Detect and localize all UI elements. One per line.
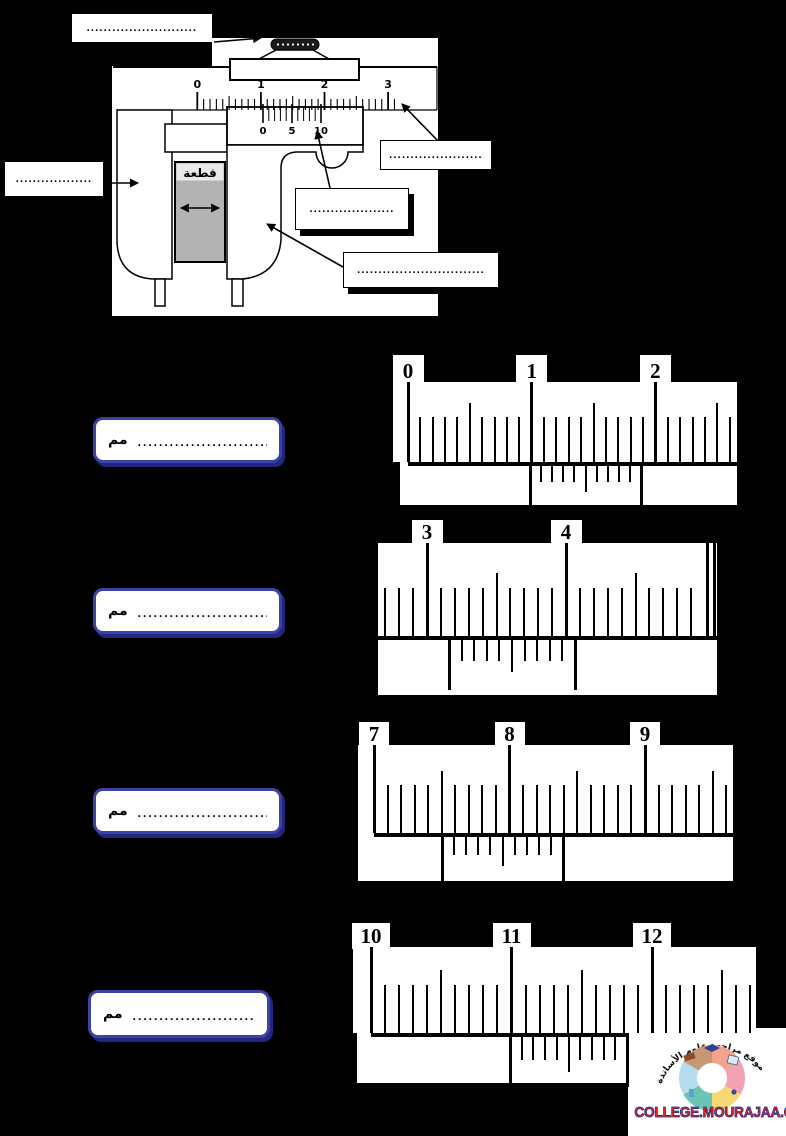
main-scale-tick bbox=[525, 985, 527, 1033]
vernier-tick bbox=[486, 636, 488, 661]
blank-line: .............................. bbox=[357, 264, 485, 276]
main-scale-tick bbox=[565, 543, 568, 636]
main-scale-tick bbox=[692, 417, 694, 462]
vernier-tick bbox=[526, 833, 528, 855]
main-scale-tick bbox=[469, 403, 471, 462]
main-scale-tick bbox=[581, 970, 583, 1033]
main-scale-tick bbox=[387, 785, 389, 833]
blank-line: .................... bbox=[309, 203, 394, 215]
vernier-tick bbox=[640, 462, 643, 509]
logo-panel: موقع مراجعة علوم الأساتذة COLLEGE.MOURAJ… bbox=[628, 1028, 786, 1136]
scale-number-tab: 11 bbox=[493, 923, 531, 949]
label-box-top-left[interactable]: .......................... bbox=[72, 14, 212, 42]
main-scale-tick bbox=[676, 588, 678, 636]
unit-label: مم bbox=[108, 803, 128, 819]
main-scale-tick bbox=[523, 588, 525, 636]
vernier-tick bbox=[573, 462, 575, 482]
main-scale-tick bbox=[543, 417, 545, 462]
main-scale-tick bbox=[725, 785, 727, 833]
scale-number-tab: 9 bbox=[630, 722, 660, 747]
main-scale-tick bbox=[508, 745, 511, 833]
scale-number-tab: 1 bbox=[516, 355, 547, 384]
main-scale-tick bbox=[370, 947, 373, 1033]
answer-blank-line[interactable]: ..................................... bbox=[138, 431, 267, 449]
main-scale-tick bbox=[384, 588, 386, 636]
vernier-tick bbox=[562, 462, 564, 482]
svg-text:0: 0 bbox=[260, 126, 267, 137]
vernier-tick bbox=[579, 1033, 581, 1060]
vernier-tick bbox=[465, 833, 467, 855]
scale-end-line bbox=[713, 543, 716, 636]
label-box-lower[interactable]: .............................. bbox=[343, 252, 499, 288]
vernier-tick bbox=[556, 1033, 558, 1060]
logo-ring-segment bbox=[691, 1090, 712, 1102]
scale-number-tab: 12 bbox=[633, 923, 671, 949]
main-scale-tick bbox=[644, 745, 647, 833]
main-scale-tick bbox=[427, 785, 429, 833]
exercise-1-vernier-box[interactable] bbox=[400, 462, 737, 505]
main-scale-tick bbox=[721, 970, 723, 1033]
vernier-tick bbox=[618, 462, 620, 482]
main-scale-tick bbox=[454, 785, 456, 833]
fixed-jaw bbox=[117, 110, 172, 279]
main-scale-tick bbox=[603, 785, 605, 833]
vernier-tick bbox=[585, 462, 587, 492]
answer-blank-line[interactable]: .................................... bbox=[138, 802, 267, 820]
main-scale-tick bbox=[456, 417, 458, 462]
main-scale-tick bbox=[400, 785, 402, 833]
main-scale-tick bbox=[712, 771, 714, 833]
svg-text:5: 5 bbox=[289, 126, 296, 137]
main-scale-tick bbox=[654, 382, 657, 462]
fixed-jaw-block bbox=[165, 124, 227, 152]
answer-box-1[interactable]: مم..................................... bbox=[93, 417, 282, 463]
main-scale-tick bbox=[576, 771, 578, 833]
main-scale-tick bbox=[609, 985, 611, 1033]
main-scale-tick bbox=[617, 785, 619, 833]
main-scale-tick bbox=[637, 985, 639, 1033]
main-scale-tick bbox=[590, 785, 592, 833]
exercise-4-vernier-box[interactable] bbox=[357, 1033, 627, 1083]
vernier-tick bbox=[536, 636, 538, 661]
vernier-tick bbox=[502, 833, 504, 866]
main-scale-tick bbox=[384, 985, 386, 1033]
main-scale-tick bbox=[698, 785, 700, 833]
main-scale-tick bbox=[398, 985, 400, 1033]
main-scale-tick bbox=[481, 417, 483, 462]
logo-ring-hole bbox=[699, 1065, 725, 1091]
unit-label: مم bbox=[103, 1006, 123, 1022]
main-scale-tick bbox=[693, 985, 695, 1033]
exercise-2-vernier-box[interactable] bbox=[378, 636, 717, 695]
main-scale-tick bbox=[407, 382, 410, 462]
main-scale-tick bbox=[621, 588, 623, 636]
main-scale-tick bbox=[665, 985, 667, 1033]
scale-number-tab: 8 bbox=[495, 722, 525, 747]
vernier-tick bbox=[453, 833, 455, 855]
main-scale-tick bbox=[432, 417, 434, 462]
vernier-tick bbox=[540, 462, 542, 482]
main-scale-tick bbox=[440, 588, 442, 636]
main-scale-tick bbox=[468, 785, 470, 833]
main-scale-tick bbox=[441, 771, 443, 833]
moving-jaw-tip bbox=[232, 279, 243, 306]
main-scale-tick bbox=[567, 985, 569, 1033]
main-scale-tick bbox=[481, 785, 483, 833]
main-scale-tick bbox=[426, 985, 428, 1033]
main-scale-tick bbox=[593, 403, 595, 462]
main-scale-tick bbox=[553, 985, 555, 1033]
main-scale-tick bbox=[398, 588, 400, 636]
main-scale-tick bbox=[662, 588, 664, 636]
main-scale-tick bbox=[648, 588, 650, 636]
main-scale-tick bbox=[729, 417, 731, 462]
scale-baseline bbox=[371, 1033, 627, 1037]
main-scale-tick bbox=[671, 785, 673, 833]
fixed-jaw-tip bbox=[155, 279, 165, 306]
main-scale-tick bbox=[623, 985, 625, 1033]
main-scale-tick bbox=[522, 785, 524, 833]
vernier-tick bbox=[549, 636, 551, 661]
main-scale-tick bbox=[735, 985, 737, 1033]
logo-ring-segment bbox=[688, 1066, 691, 1090]
scale-end-line bbox=[706, 543, 709, 636]
main-scale-tick bbox=[414, 785, 416, 833]
main-scale-tick bbox=[551, 588, 553, 636]
main-scale-tick bbox=[555, 417, 557, 462]
vernier-tick bbox=[550, 833, 552, 855]
main-scale-tick bbox=[539, 985, 541, 1033]
atom-icon bbox=[731, 1089, 736, 1094]
scale-number-tab: 2 bbox=[640, 355, 671, 384]
vernier-tick bbox=[532, 1033, 534, 1060]
vernier-tick bbox=[509, 1033, 512, 1099]
vernier-tick bbox=[614, 1033, 616, 1060]
vernier-tick bbox=[473, 636, 475, 661]
unit-label: مم bbox=[108, 603, 128, 619]
main-scale-tick bbox=[593, 588, 595, 636]
vernier-tick bbox=[544, 1033, 546, 1060]
main-scale-tick bbox=[707, 985, 709, 1033]
vernier-tick bbox=[591, 1033, 593, 1060]
main-scale-tick bbox=[651, 947, 654, 1033]
vernier-tick bbox=[524, 636, 526, 661]
vernier-tick bbox=[626, 1033, 629, 1087]
vernier-tick bbox=[441, 833, 444, 885]
answer-box-4[interactable]: مم............................. bbox=[88, 990, 270, 1038]
main-scale-tick bbox=[496, 573, 498, 636]
main-scale-tick bbox=[468, 985, 470, 1033]
main-scale-tick bbox=[630, 417, 632, 462]
vernier-tick bbox=[551, 462, 553, 482]
vernier-tick bbox=[568, 1033, 570, 1072]
workpiece-label: قطعة bbox=[183, 166, 217, 180]
site-name[interactable]: COLLEGE.MOURAJAA.COM bbox=[634, 1104, 779, 1121]
main-scale-tick bbox=[679, 417, 681, 462]
label-box-left[interactable]: .................. bbox=[5, 162, 103, 196]
vernier-tick bbox=[538, 833, 540, 855]
main-scale-tick bbox=[716, 403, 718, 462]
vernier-tick bbox=[574, 636, 577, 690]
main-scale-tick bbox=[595, 985, 597, 1033]
main-scale-tick bbox=[679, 985, 681, 1033]
main-scale-tick bbox=[496, 985, 498, 1033]
main-scale-tick bbox=[536, 785, 538, 833]
main-scale-tick bbox=[482, 985, 484, 1033]
scale-baseline bbox=[374, 833, 733, 837]
vernier-tick bbox=[561, 636, 563, 661]
main-scale-tick bbox=[506, 417, 508, 462]
blank-line: .................. bbox=[16, 173, 93, 185]
svg-text:3: 3 bbox=[384, 78, 392, 91]
main-scale-tick bbox=[630, 785, 632, 833]
main-scale-tick bbox=[704, 417, 706, 462]
main-scale-tick bbox=[518, 417, 520, 462]
label-box-middle[interactable]: .................... bbox=[295, 188, 409, 230]
vernier-tick bbox=[529, 462, 532, 509]
svg-text:0: 0 bbox=[193, 78, 201, 91]
scale-number-tab: 4 bbox=[551, 520, 582, 545]
vernier-tick bbox=[448, 636, 451, 690]
vernier-tick bbox=[489, 833, 491, 855]
exercise-3-vernier-box[interactable] bbox=[358, 833, 733, 881]
answer-box-3[interactable]: مم.................................... bbox=[93, 788, 282, 834]
logo-ring-segment bbox=[712, 1090, 733, 1102]
answer-blank-line[interactable]: ............................. bbox=[133, 1005, 255, 1023]
main-scale-tick bbox=[635, 573, 637, 636]
vernier-tick bbox=[511, 636, 513, 672]
vernier-tick bbox=[562, 833, 565, 885]
main-scale-tick bbox=[658, 785, 660, 833]
main-scale-tick bbox=[468, 588, 470, 636]
vernier-tick bbox=[498, 636, 500, 661]
scale-number-tab: 0 bbox=[393, 355, 424, 384]
main-scale-tick bbox=[482, 588, 484, 636]
svg-text:2: 2 bbox=[321, 78, 329, 91]
main-scale-tick bbox=[444, 417, 446, 462]
unit-label: مم bbox=[108, 432, 128, 448]
scale-number-tab: 10 bbox=[352, 923, 390, 949]
main-scale-tick bbox=[667, 417, 669, 462]
main-scale-tick bbox=[579, 588, 581, 636]
main-scale-tick bbox=[537, 588, 539, 636]
vernier-tick bbox=[629, 462, 631, 482]
answer-box-2[interactable]: مم..................................... bbox=[93, 588, 282, 634]
svg-text:10: 10 bbox=[314, 126, 328, 137]
vernier-tick bbox=[607, 462, 609, 482]
main-scale-tick bbox=[412, 588, 414, 636]
flask-icon bbox=[689, 1089, 694, 1097]
clamp-housing bbox=[230, 59, 359, 80]
main-scale-tick bbox=[563, 785, 565, 833]
main-scale-tick bbox=[568, 417, 570, 462]
main-scale-tick bbox=[419, 417, 421, 462]
main-scale-tick bbox=[440, 970, 442, 1033]
main-scale-tick bbox=[607, 588, 609, 636]
logo-ring-segment bbox=[733, 1066, 736, 1090]
label-box-upper-right[interactable]: ...................... bbox=[380, 140, 492, 170]
main-scale-tick bbox=[412, 985, 414, 1033]
main-scale-tick bbox=[685, 785, 687, 833]
main-scale-tick bbox=[605, 417, 607, 462]
main-scale-tick bbox=[510, 947, 513, 1033]
blank-line: .......................... bbox=[87, 22, 198, 34]
main-scale-tick bbox=[454, 588, 456, 636]
scale-baseline bbox=[378, 636, 717, 640]
main-scale-tick bbox=[454, 985, 456, 1033]
main-scale-tick bbox=[509, 588, 511, 636]
main-scale-tick bbox=[690, 588, 692, 636]
vernier-tick bbox=[461, 636, 463, 661]
vernier-tick bbox=[521, 1033, 523, 1060]
main-scale-tick bbox=[642, 417, 644, 462]
main-scale-tick bbox=[426, 543, 429, 636]
main-scale-tick bbox=[617, 417, 619, 462]
scale-number-tab: 3 bbox=[412, 520, 443, 545]
main-scale-tick bbox=[749, 985, 751, 1033]
main-scale-tick bbox=[530, 382, 533, 462]
vernier-tick bbox=[603, 1033, 605, 1060]
svg-text:1: 1 bbox=[257, 78, 265, 91]
main-scale-tick bbox=[373, 745, 376, 833]
vernier-tick bbox=[596, 462, 598, 482]
blank-line: ...................... bbox=[389, 149, 483, 161]
exercise-2-main-scale-box bbox=[378, 543, 717, 636]
scale-number-tab: 7 bbox=[359, 722, 389, 747]
main-scale-tick bbox=[549, 785, 551, 833]
main-scale-tick bbox=[494, 417, 496, 462]
vernier-tick bbox=[514, 833, 516, 855]
answer-blank-line[interactable]: ..................................... bbox=[138, 602, 267, 620]
worksheet-page: قطعة 0123 0510 .........................… bbox=[0, 0, 786, 1136]
main-scale-tick bbox=[580, 417, 582, 462]
caliper-diagram: قطعة 0123 0510 bbox=[0, 0, 786, 345]
main-scale-tick bbox=[495, 785, 497, 833]
vernier-tick bbox=[477, 833, 479, 855]
